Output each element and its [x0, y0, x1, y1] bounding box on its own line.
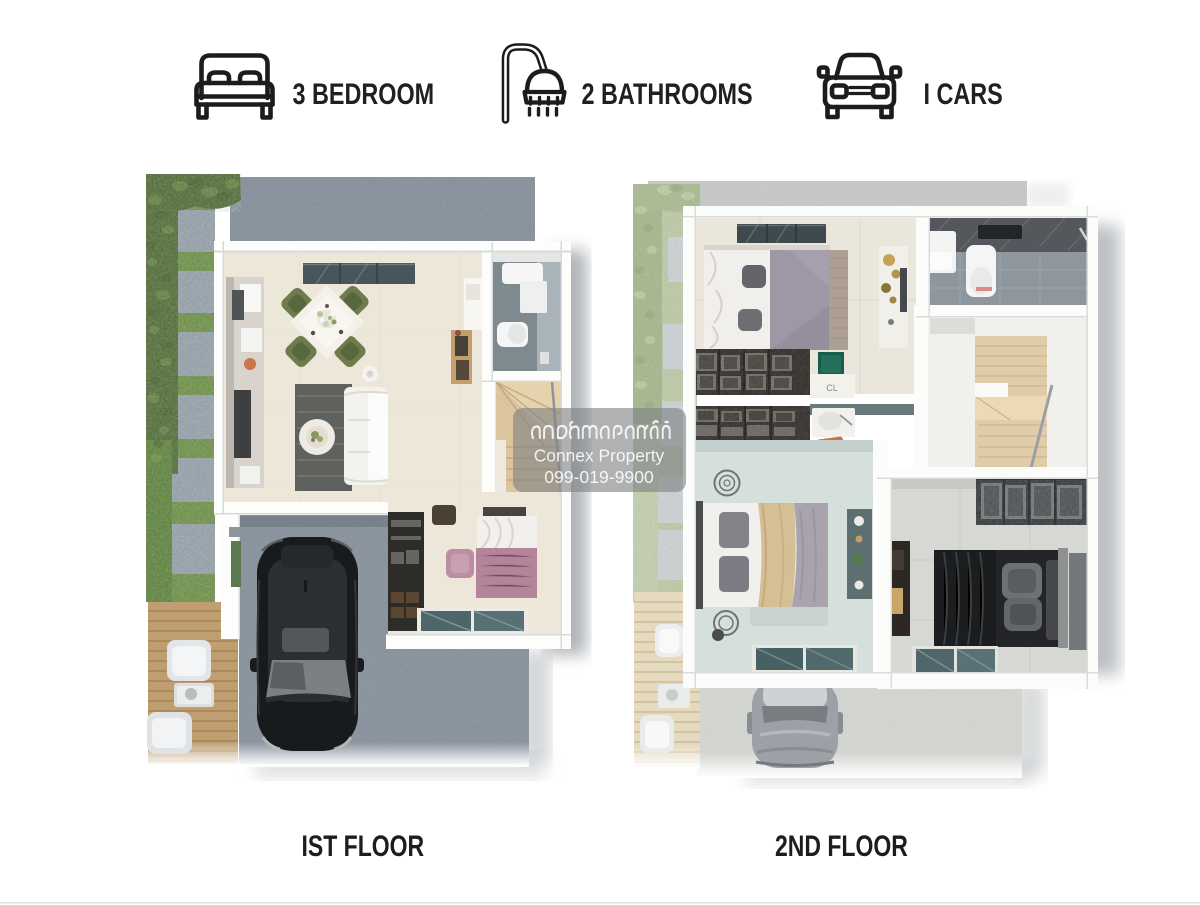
svg-text:2ND FLOOR: 2ND FLOOR [775, 829, 908, 862]
svg-text:IST FLOOR: IST FLOOR [302, 829, 425, 862]
svg-text:Connex Property: Connex Property [534, 446, 665, 466]
svg-text:I CARS: I CARS [924, 77, 1003, 110]
svg-text:2 BATHROOMS: 2 BATHROOMS [582, 77, 753, 110]
svg-text:099-019-9900: 099-019-9900 [544, 467, 654, 487]
svg-text:3 BEDROOM: 3 BEDROOM [293, 77, 435, 110]
svg-text:CL: CL [826, 383, 838, 393]
